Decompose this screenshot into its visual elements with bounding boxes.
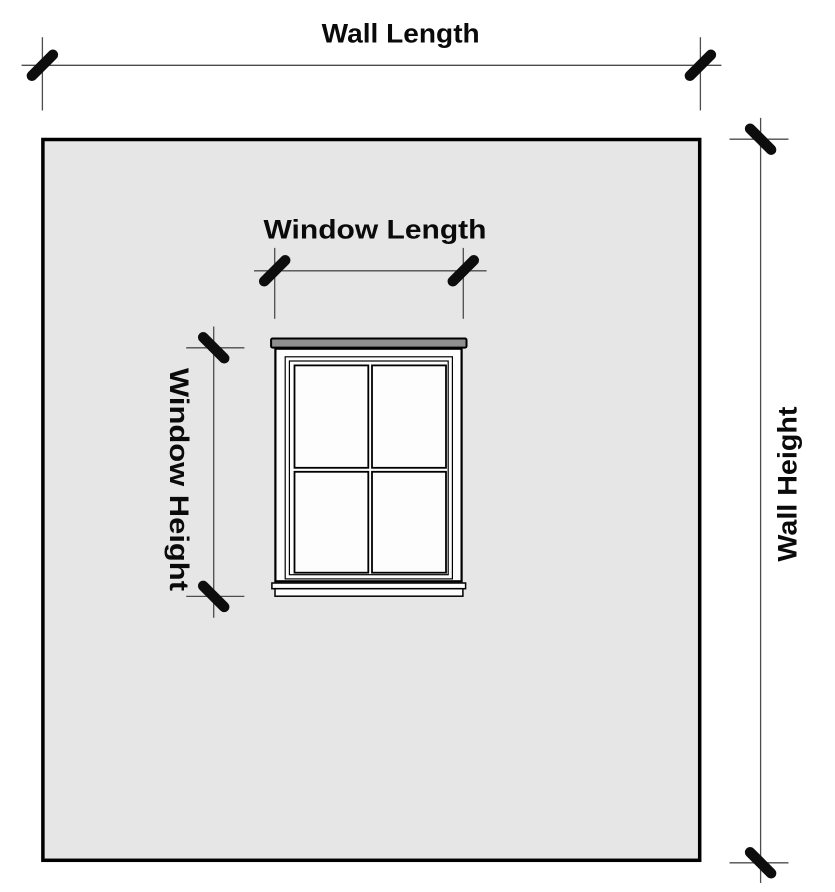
svg-text:Wall Height: Wall Height	[773, 407, 803, 562]
svg-text:Window Length: Window Length	[264, 215, 487, 245]
svg-text:Window Height: Window Height	[164, 368, 194, 591]
svg-text:Wall Length: Wall Length	[322, 18, 480, 48]
